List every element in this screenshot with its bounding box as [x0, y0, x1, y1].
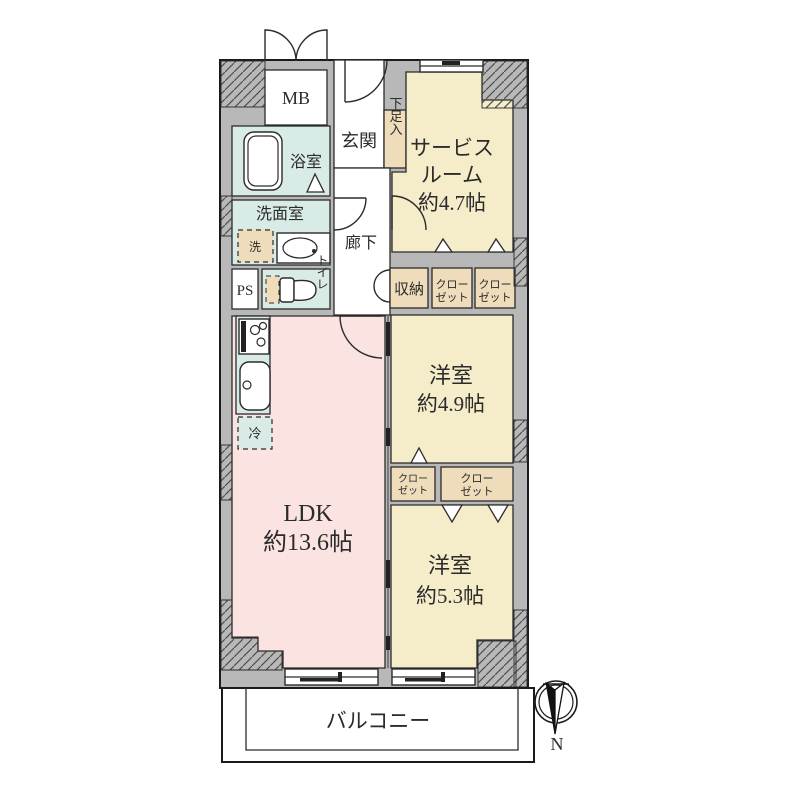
- ldk-window: [285, 669, 378, 685]
- kitchen-sink: [240, 362, 270, 410]
- room-entrance: [334, 60, 384, 168]
- label-closet-a-1: クロー: [436, 278, 469, 291]
- label-service-room-1: サービス: [410, 136, 494, 160]
- toilet-tank: [280, 278, 294, 302]
- label-fridge: 冷: [248, 426, 261, 441]
- label-meter-box: MB: [282, 88, 310, 108]
- label-storage: 収納: [394, 281, 424, 298]
- partition-mark: [386, 428, 390, 446]
- floorplan-svg: MB 玄関 下足入 サービス ルーム 約4.7帖 浴室 洗面室 洗 廊下 PS …: [0, 0, 800, 800]
- hatch-right-lower: [514, 420, 527, 462]
- label-shoe-cabinet: 下足入: [388, 97, 403, 136]
- service-room-window: [420, 60, 483, 72]
- label-closet-b-1: クロー: [479, 278, 512, 291]
- label-pipe-space: PS: [237, 283, 254, 299]
- room-bedroom1: [391, 315, 513, 463]
- label-closet-d-2: ゼット: [461, 485, 494, 498]
- label-closet-d-1: クロー: [461, 472, 494, 485]
- label-bedroom2-1: 洋室: [428, 553, 472, 578]
- label-north: N: [551, 734, 564, 754]
- vanity-faucet: [312, 249, 316, 253]
- label-bedroom1-1: 洋室: [429, 363, 473, 388]
- label-service-room-3: 約4.7帖: [418, 191, 486, 215]
- stove-edge: [241, 321, 246, 352]
- label-bedroom2-2: 約5.3帖: [416, 584, 484, 608]
- toilet-outlet: [266, 276, 279, 303]
- bedroom2-window: [392, 669, 475, 685]
- label-closet-c-2: ゼット: [398, 485, 428, 497]
- label-ldk-2: 約13.6帖: [263, 529, 353, 556]
- label-closet-b-2: ゼット: [479, 291, 512, 304]
- hatch-left-upper: [221, 196, 232, 236]
- compass-north-icon: [535, 681, 577, 734]
- label-closet-a-2: ゼット: [436, 291, 469, 304]
- label-bedroom1-2: 約4.9帖: [417, 392, 485, 416]
- label-washroom: 洗面室: [256, 205, 304, 223]
- label-closet-c-1: クロー: [398, 473, 428, 485]
- partition-mark: [386, 560, 390, 588]
- floorplan-page: MB 玄関 下足入 サービス ルーム 約4.7帖 浴室 洗面室 洗 廊下 PS …: [0, 0, 800, 800]
- label-ldk-1: LDK: [283, 501, 333, 527]
- mb-door-right: [296, 30, 327, 61]
- hatch-top-right: [482, 61, 527, 108]
- partition-mark: [386, 322, 390, 356]
- label-balcony: バルコニー: [326, 709, 431, 733]
- toilet-bowl: [294, 280, 316, 300]
- label-corridor: 廊下: [345, 234, 377, 252]
- hatch-right-mid: [514, 238, 527, 286]
- mb-door-left: [265, 30, 296, 61]
- hatch-top-left: [221, 61, 265, 107]
- bathtub: [244, 132, 282, 190]
- hatch-bottom-right: [478, 641, 516, 687]
- label-service-room-2: ルーム: [421, 163, 483, 187]
- label-bathroom: 浴室: [290, 153, 322, 171]
- label-toilet: トイレ: [315, 254, 329, 290]
- partition-mark: [386, 636, 390, 650]
- label-entrance: 玄関: [341, 131, 377, 151]
- label-washer: 洗: [249, 240, 261, 254]
- hatch-left-mid: [221, 445, 232, 500]
